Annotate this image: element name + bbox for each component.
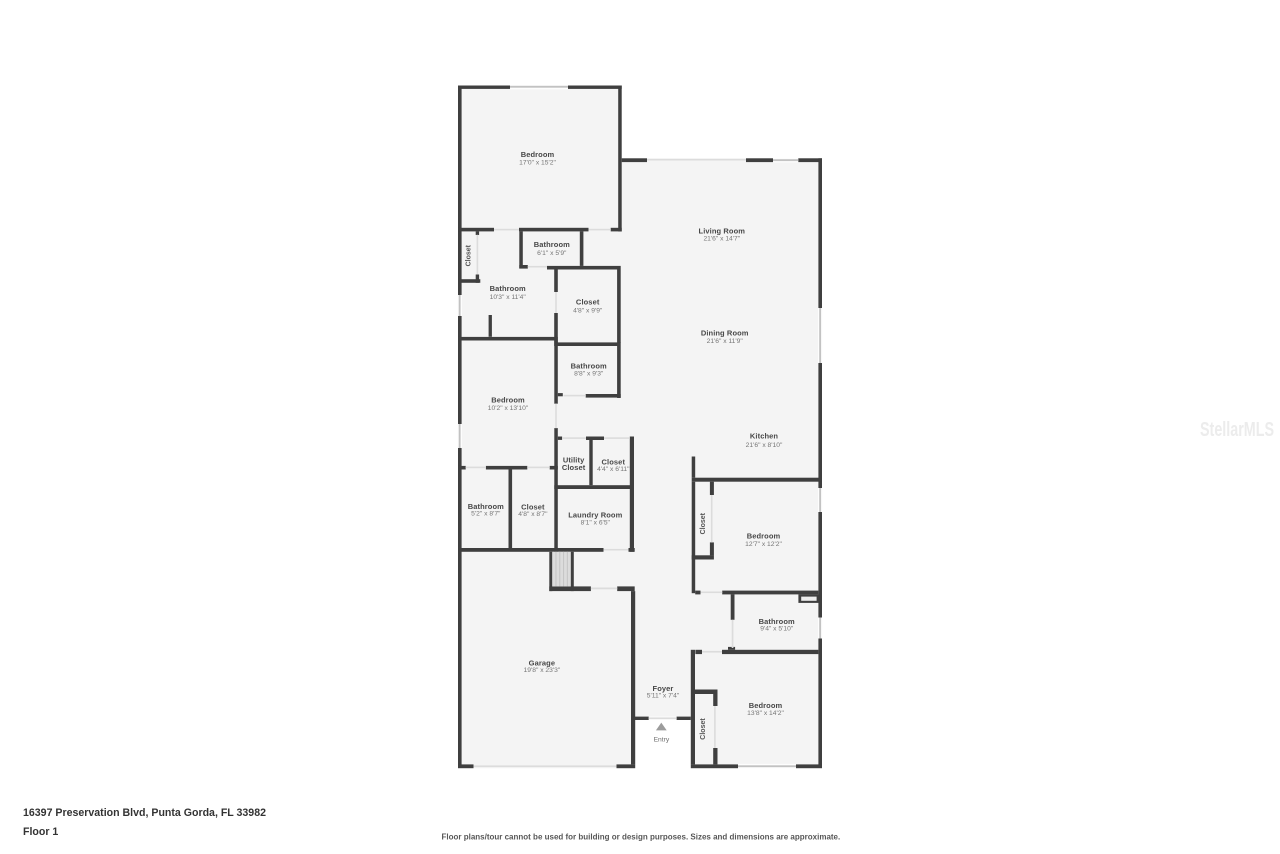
svg-text:5'2" x 8'7": 5'2" x 8'7": [471, 511, 501, 518]
svg-text:Bedroom: Bedroom: [521, 150, 555, 159]
svg-text:Bathroom: Bathroom: [759, 617, 795, 626]
svg-text:21'6" x 14'7": 21'6" x 14'7": [703, 235, 740, 242]
svg-text:Bathroom: Bathroom: [490, 284, 526, 293]
svg-text:Closet: Closet: [562, 463, 586, 472]
svg-text:Bathroom: Bathroom: [571, 361, 607, 370]
svg-text:Bedroom: Bedroom: [749, 701, 783, 710]
svg-text:6'1" x 5'9": 6'1" x 5'9": [537, 250, 567, 257]
svg-text:13'8" x 14'2": 13'8" x 14'2": [747, 710, 784, 717]
svg-text:StellarMLS: StellarMLS: [1200, 419, 1274, 441]
svg-text:Kitchen: Kitchen: [750, 432, 779, 441]
svg-text:Closet: Closet: [700, 718, 707, 740]
svg-text:Bathroom: Bathroom: [534, 240, 570, 249]
svg-text:Floor plans/tour cannot be use: Floor plans/tour cannot be used for buil…: [442, 833, 841, 842]
svg-text:Entry: Entry: [654, 737, 670, 744]
svg-text:4'8" x 8'7": 4'8" x 8'7": [518, 511, 548, 518]
svg-text:10'3" x 11'4": 10'3" x 11'4": [490, 294, 527, 301]
svg-text:Bedroom: Bedroom: [747, 532, 781, 541]
svg-text:9'4" x 5'10": 9'4" x 5'10": [760, 626, 794, 633]
svg-text:4'8" x 9'9": 4'8" x 9'9": [573, 307, 603, 314]
svg-text:17'0" x 15'2": 17'0" x 15'2": [519, 160, 556, 167]
svg-text:4'4" x 6'11": 4'4" x 6'11": [597, 466, 630, 473]
svg-text:16397 Preservation Blvd, Punta: 16397 Preservation Blvd, Punta Gorda, FL…: [23, 807, 266, 819]
svg-text:5'11" x 7'4": 5'11" x 7'4": [647, 693, 680, 700]
svg-text:19'8" x 23'3": 19'8" x 23'3": [524, 667, 561, 674]
svg-text:Closet: Closet: [700, 512, 707, 534]
svg-text:21'6" x 8'10": 21'6" x 8'10": [746, 442, 783, 449]
svg-text:Bathroom: Bathroom: [468, 502, 504, 511]
svg-text:10'2" x 13'10": 10'2" x 13'10": [488, 405, 529, 412]
svg-text:8'8" x 9'3": 8'8" x 9'3": [574, 370, 604, 377]
svg-text:8'1" x 6'5": 8'1" x 6'5": [581, 519, 611, 526]
svg-text:Closet: Closet: [576, 298, 600, 307]
svg-text:Floor 1: Floor 1: [23, 826, 58, 838]
svg-text:Dining Room: Dining Room: [701, 329, 749, 338]
svg-text:Closet: Closet: [466, 244, 473, 266]
svg-text:21'6" x 11'9": 21'6" x 11'9": [707, 338, 744, 345]
svg-text:Laundry Room: Laundry Room: [568, 511, 622, 520]
svg-text:Living Room: Living Room: [699, 226, 746, 235]
svg-text:Bedroom: Bedroom: [491, 396, 525, 405]
svg-text:12'7" x 12'2": 12'7" x 12'2": [745, 541, 782, 548]
